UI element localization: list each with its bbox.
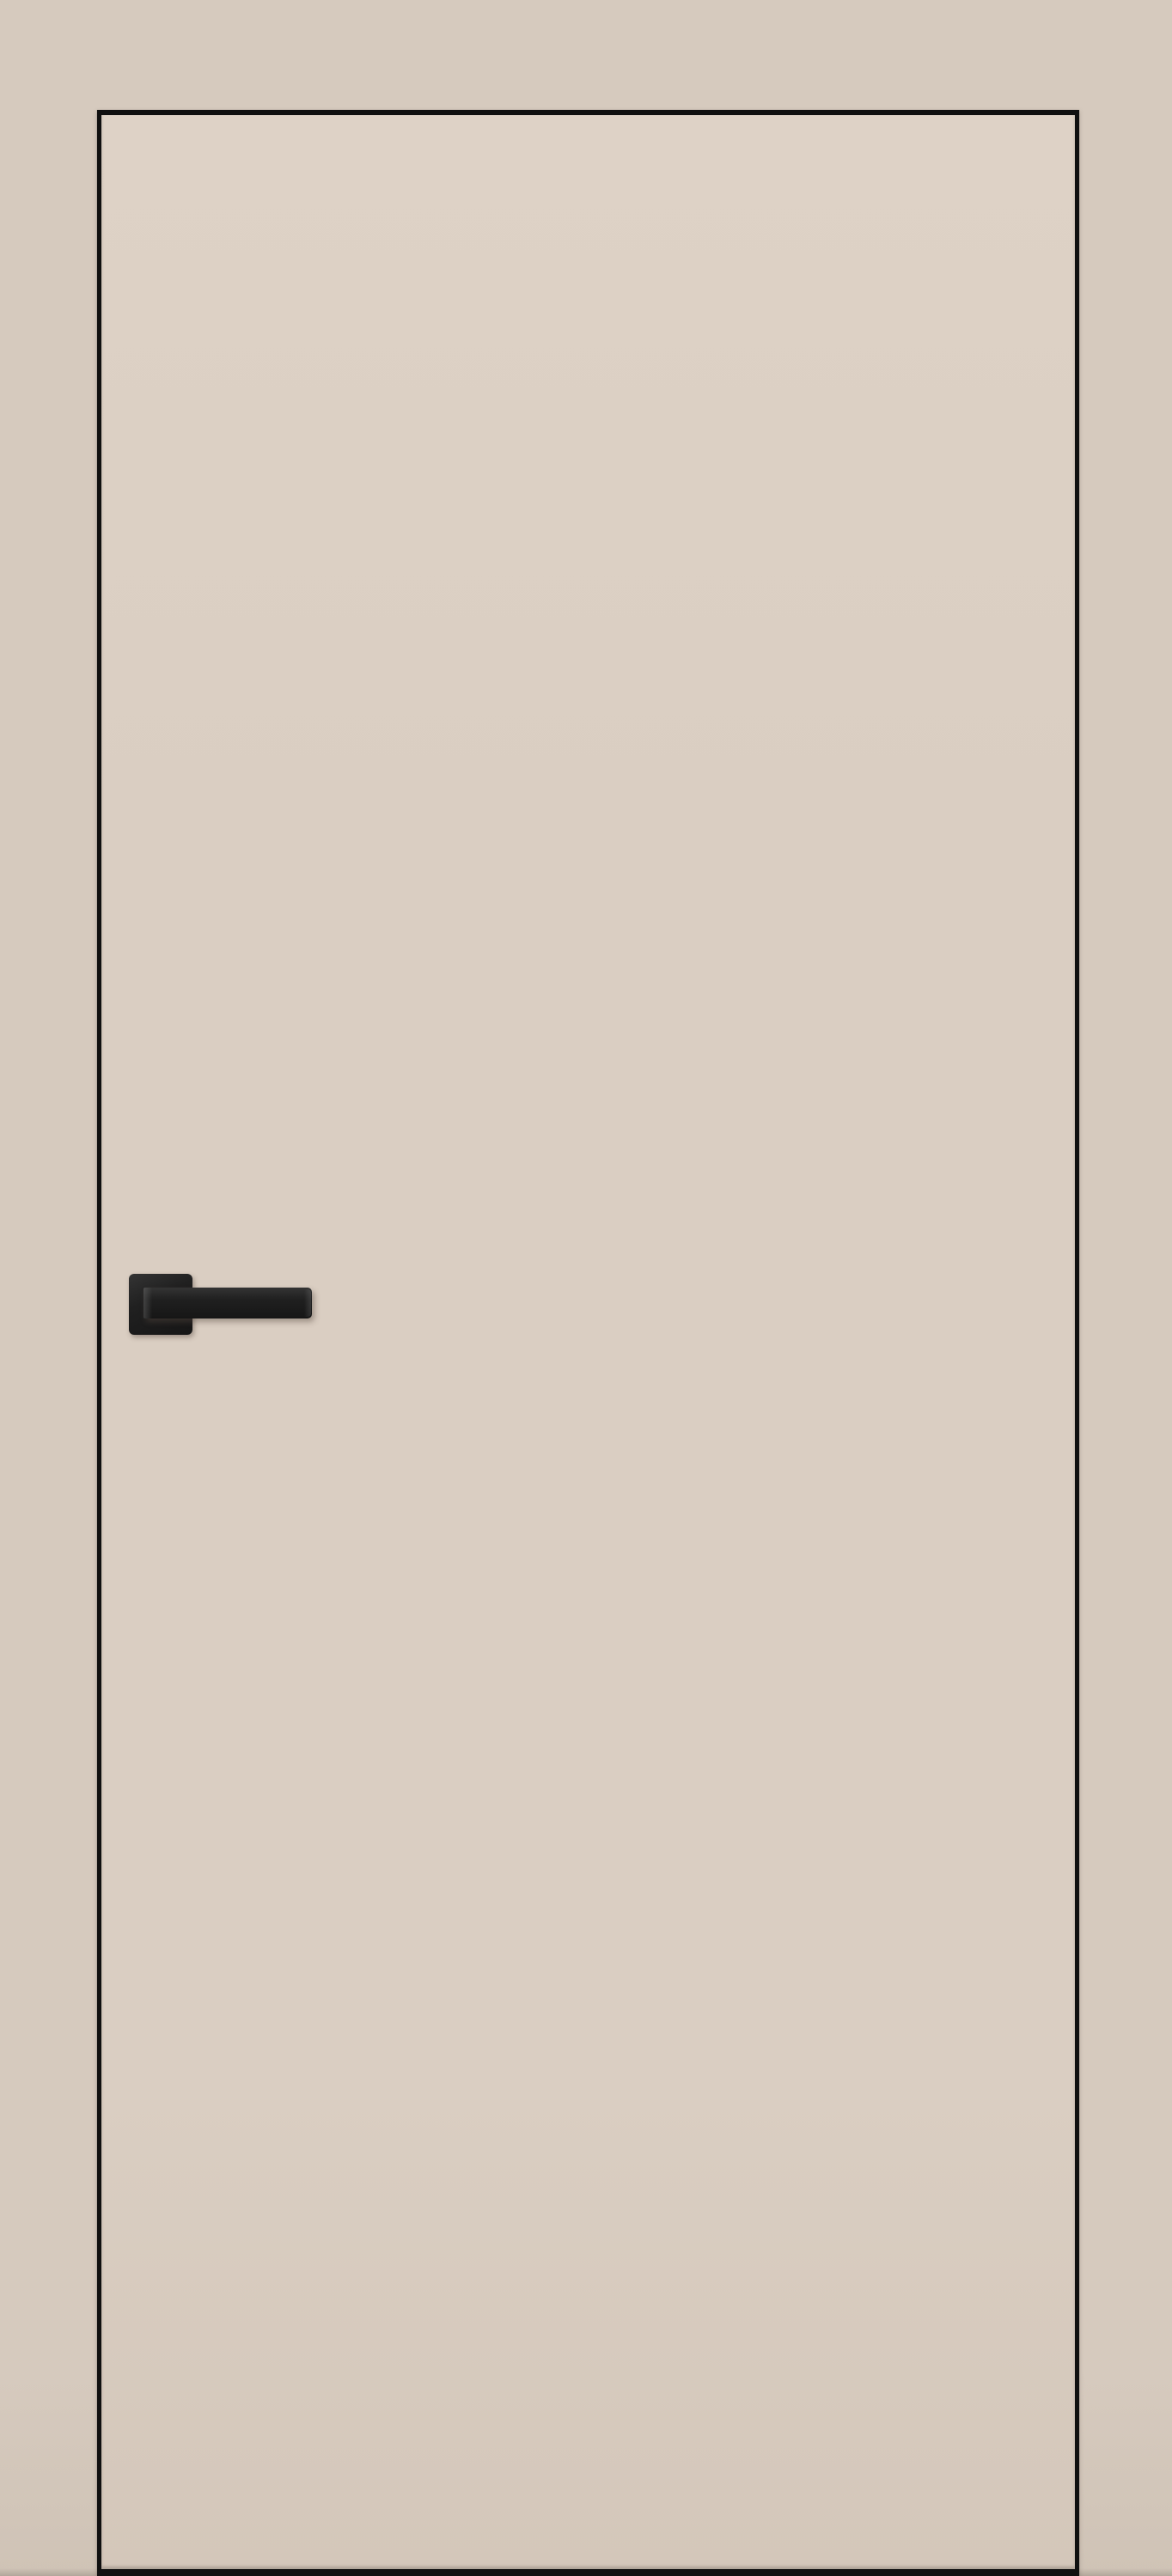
- door: [97, 110, 1079, 2576]
- door-handle: [129, 1274, 301, 1338]
- wall-background: [0, 0, 1172, 2576]
- handle-lever: [143, 1288, 312, 1318]
- door-surface: [101, 115, 1075, 2569]
